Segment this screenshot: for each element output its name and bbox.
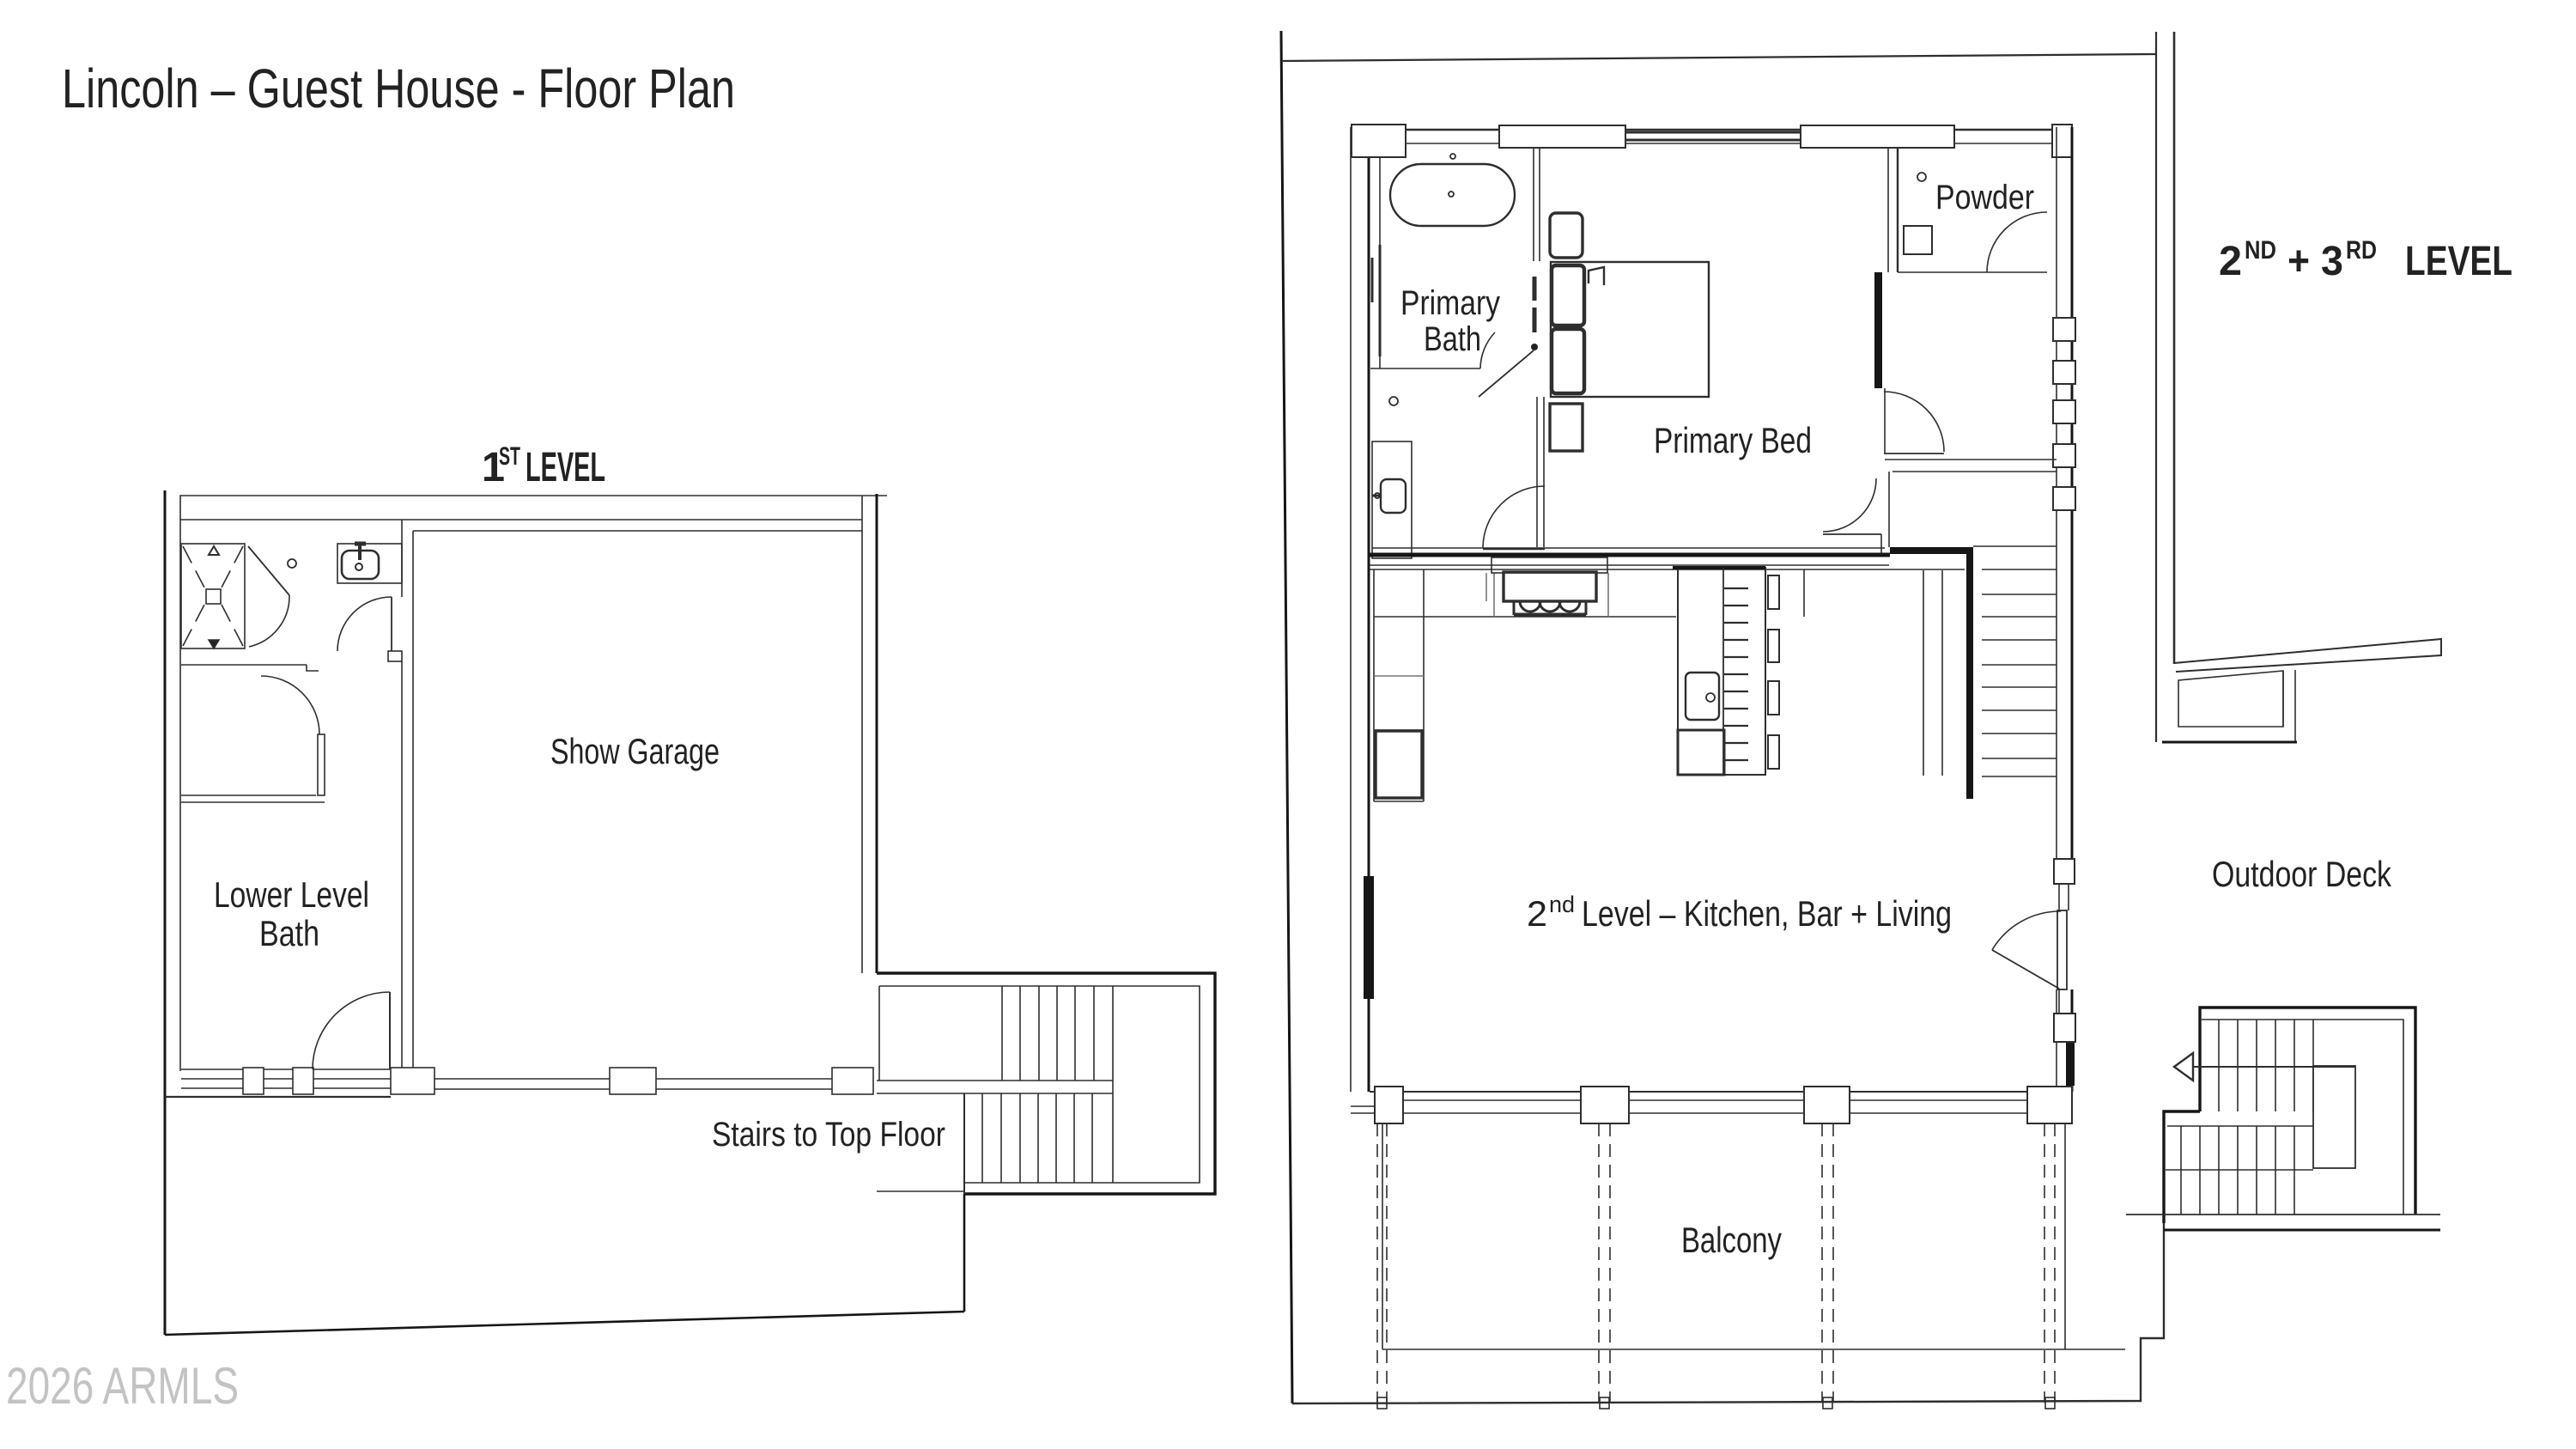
svg-text:Outdoor Deck: Outdoor Deck xyxy=(2212,854,2392,894)
svg-text:2026 ARMLS: 2026 ARMLS xyxy=(6,1357,239,1415)
svg-text:Bath: Bath xyxy=(259,913,319,953)
svg-text:LEVEL: LEVEL xyxy=(526,445,605,490)
svg-text:LEVEL: LEVEL xyxy=(2405,239,2512,284)
svg-text:2: 2 xyxy=(2219,239,2242,284)
svg-text:Balcony: Balcony xyxy=(1681,1220,1782,1260)
svg-text:Level – Kitchen, Bar + Living: Level – Kitchen, Bar + Living xyxy=(1582,893,1952,934)
svg-text:3: 3 xyxy=(2321,239,2343,284)
svg-text:Lower Level: Lower Level xyxy=(214,874,369,915)
svg-text:Powder: Powder xyxy=(1935,179,2034,216)
svg-text:ND: ND xyxy=(2245,236,2276,265)
svg-text:Lincoln – Guest House - Floor: Lincoln – Guest House - Floor Plan xyxy=(62,58,735,119)
svg-text:Stairs to Top Floor: Stairs to Top Floor xyxy=(712,1116,945,1154)
svg-text:2: 2 xyxy=(1527,893,1547,934)
svg-text:Bath: Bath xyxy=(1424,320,1481,358)
svg-text:Primary: Primary xyxy=(1400,284,1500,322)
svg-text:ST: ST xyxy=(499,442,520,471)
svg-text:Show Garage: Show Garage xyxy=(550,731,720,771)
svg-text:Primary Bed: Primary Bed xyxy=(1654,420,1812,460)
svg-text:RD: RD xyxy=(2346,236,2377,265)
svg-text:nd: nd xyxy=(1549,892,1575,917)
svg-text:+: + xyxy=(2287,239,2310,284)
